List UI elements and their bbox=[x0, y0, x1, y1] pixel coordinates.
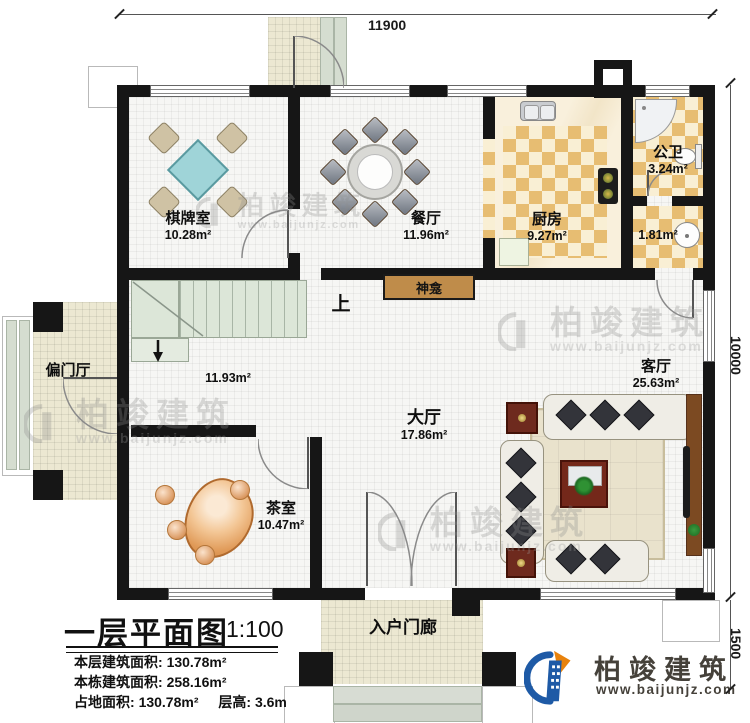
porch-column bbox=[33, 302, 63, 332]
wall-under-chess bbox=[117, 268, 288, 280]
dimension-line-top bbox=[120, 14, 716, 15]
dimension-top-value: 11900 bbox=[368, 17, 406, 33]
stair-hall-area-label: 11.93m² bbox=[205, 371, 251, 386]
corner-marker bbox=[662, 600, 720, 642]
toilet-tank bbox=[695, 144, 702, 169]
floor-plan: 11900 10000 1500 bbox=[0, 0, 750, 723]
window bbox=[703, 290, 715, 362]
wall-left bbox=[117, 85, 129, 600]
shower-drain bbox=[642, 106, 646, 110]
room-label-bathroom: 公卫 3.24m² bbox=[648, 144, 688, 177]
wall-under-wash bbox=[693, 268, 715, 280]
tea-stool bbox=[195, 545, 215, 565]
tea-stool bbox=[230, 480, 250, 500]
tea-stool bbox=[167, 520, 187, 540]
porch-column bbox=[482, 652, 516, 686]
stat-building-area: 本栋建筑面积: 258.16m² bbox=[74, 672, 227, 692]
dining-table-top bbox=[357, 154, 393, 190]
wall-kitchen-bath bbox=[621, 97, 633, 280]
end-table bbox=[506, 402, 538, 434]
side-porch-steps bbox=[19, 320, 30, 470]
washroom-door bbox=[655, 280, 695, 320]
tv bbox=[683, 446, 690, 518]
wall-tea-right bbox=[310, 437, 322, 588]
kitchen-sink bbox=[520, 101, 556, 121]
company-website: www.baijunjz.com bbox=[596, 682, 737, 697]
stairs-direction-arrow bbox=[150, 338, 170, 364]
room-label-dining: 餐厅 11.96m² bbox=[403, 210, 449, 243]
wall-bottom-seg bbox=[273, 588, 365, 600]
end-table-ornament bbox=[517, 559, 525, 567]
room-label-washroom: 1.81m² bbox=[638, 228, 678, 243]
main-entry-double-door bbox=[365, 492, 458, 588]
wall-bath-wash bbox=[633, 196, 647, 206]
wall-dining-kitchen bbox=[483, 97, 495, 139]
wall-tea-top bbox=[131, 425, 256, 437]
door-jamb-column bbox=[452, 588, 480, 616]
entry-porch-step bbox=[333, 686, 482, 704]
window bbox=[703, 548, 715, 593]
sink-bowl bbox=[524, 105, 539, 120]
burner bbox=[603, 189, 613, 199]
shrine-cabinet: 神龛 bbox=[383, 274, 475, 300]
side-porch-door bbox=[63, 376, 117, 434]
window bbox=[447, 85, 527, 97]
porch-column bbox=[33, 470, 63, 500]
kitchen-pass-floor bbox=[483, 139, 495, 238]
tea-stool bbox=[155, 485, 175, 505]
plan-scale: 1:100 bbox=[226, 616, 284, 643]
room-label-tea: 茶室 10.47m² bbox=[258, 500, 305, 533]
stove bbox=[598, 168, 618, 204]
company-logo-icon bbox=[524, 646, 586, 708]
entry-steps-frame bbox=[284, 686, 335, 723]
end-table bbox=[506, 548, 536, 578]
stat-land-area-and-height: 占地面积: 130.78m² 层高: 3.6m bbox=[74, 692, 287, 712]
window bbox=[540, 588, 676, 600]
coffee-table bbox=[560, 460, 608, 508]
stairs-up-label: 上 bbox=[331, 294, 350, 317]
small-plant bbox=[688, 524, 700, 536]
room-label-entry-porch: 入户门廊 bbox=[369, 618, 437, 638]
rear-porch-door bbox=[292, 36, 344, 88]
side-porch-steps bbox=[6, 320, 17, 470]
chess-room-door bbox=[240, 208, 290, 260]
wash-basin bbox=[674, 222, 700, 248]
stat-floor-area: 本层建筑面积: 130.78m² bbox=[74, 652, 227, 672]
room-label-kitchen: 厨房 9.27m² bbox=[527, 211, 567, 244]
kitchen-cabinet bbox=[499, 238, 529, 266]
room-label-hall: 大厅 17.86m² bbox=[401, 408, 448, 443]
potted-plant bbox=[574, 476, 594, 496]
tea-room-door bbox=[258, 437, 310, 489]
room-label-side-porch: 偏门厅 bbox=[45, 362, 90, 380]
window bbox=[150, 85, 250, 97]
wall-bath-wash bbox=[672, 196, 715, 206]
sink-bowl bbox=[540, 105, 555, 120]
entry-porch-step bbox=[333, 704, 482, 722]
wall-under-wash bbox=[633, 268, 655, 280]
burner bbox=[603, 173, 613, 183]
dimension-right-value: 10000 bbox=[728, 336, 744, 375]
end-table-ornament bbox=[518, 414, 526, 422]
stairs-break-line bbox=[131, 280, 211, 338]
wall-chess-dining bbox=[288, 97, 300, 209]
window bbox=[645, 85, 690, 97]
porch-column bbox=[299, 652, 333, 686]
basin-drain bbox=[685, 234, 689, 238]
room-label-chess: 棋牌室 10.28m² bbox=[165, 210, 212, 243]
room-label-living: 客厅 25.63m² bbox=[633, 358, 680, 391]
wall-bottom-seg bbox=[117, 588, 168, 600]
window bbox=[168, 588, 273, 600]
shrine-label: 神龛 bbox=[416, 278, 442, 297]
wall-under-kitchen bbox=[483, 268, 633, 280]
